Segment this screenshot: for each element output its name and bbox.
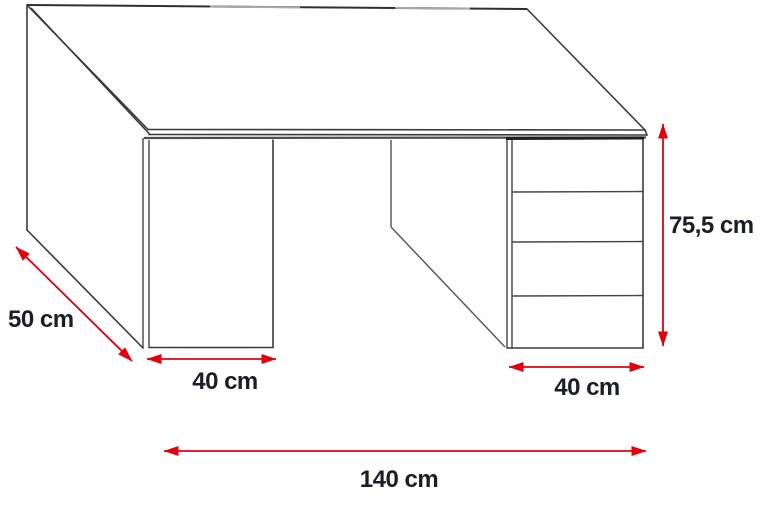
dimension-depth: 50 cm — [8, 247, 132, 361]
desktop-back-edge-highlight — [395, 8, 470, 9]
dimension-label-left-pedestal-width: 40 cm — [192, 368, 258, 395]
dimension-total-width: 140 cm — [164, 451, 646, 493]
back-panel-diagonal-edge — [391, 227, 505, 347]
dimension-label-height: 75,5 cm — [669, 212, 754, 239]
dimension-drawer-unit-width: 40 cm — [509, 367, 644, 401]
dimension-left-pedestal-width: 40 cm — [147, 359, 276, 395]
desk-dimension-diagram: 50 cm 40 cm 40 cm 140 cm 75,5 cm — [0, 0, 761, 529]
diagram-canvas: 50 cm 40 cm 40 cm 140 cm 75,5 cm — [0, 0, 761, 529]
desktop-right-edge — [527, 9, 645, 130]
dimension-height: 75,5 cm — [663, 124, 754, 346]
dimension-label-depth: 50 cm — [8, 306, 74, 333]
drawer-divider — [512, 242, 643, 243]
desk-top — [27, 5, 647, 138]
dimension-label-total-width: 140 cm — [360, 466, 438, 493]
drawer-unit-top-edge — [506, 138, 644, 139]
left-side-panel — [27, 5, 143, 348]
desktop-front-edge-top — [148, 130, 645, 131]
left-pedestal — [149, 140, 273, 348]
desktop-left-edge-inner — [32, 9, 151, 135]
desktop-front-edge-bottom — [149, 135, 647, 136]
drawer-divider — [512, 192, 643, 193]
dimension-arrow-depth — [16, 247, 132, 361]
dimension-label-drawer-unit-width: 40 cm — [554, 374, 620, 401]
drawer-divider — [512, 296, 643, 297]
desktop-back-edge-highlight — [210, 7, 300, 8]
drawer-unit — [506, 138, 644, 348]
back-panel — [391, 140, 505, 347]
